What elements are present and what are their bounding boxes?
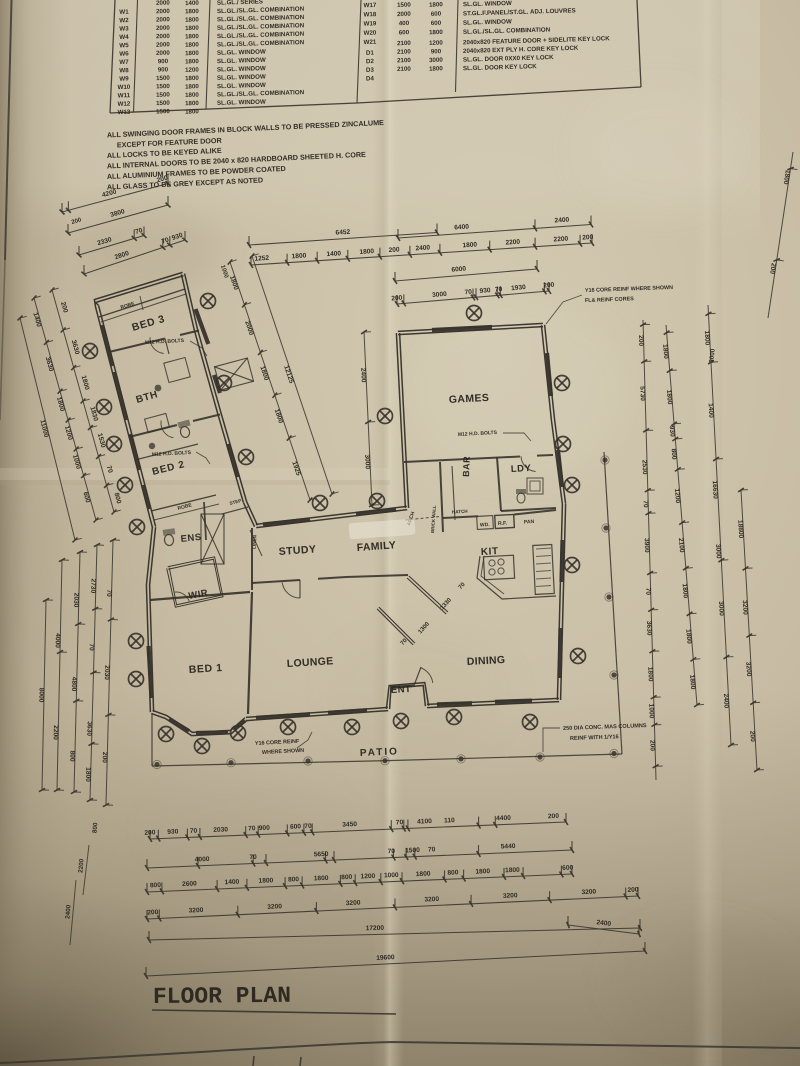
svg-text:W13: W13 xyxy=(117,109,130,116)
svg-text:W3: W3 xyxy=(119,25,129,32)
svg-text:2400: 2400 xyxy=(64,904,72,919)
svg-text:5650: 5650 xyxy=(314,851,329,859)
svg-text:70: 70 xyxy=(644,588,651,596)
svg-text:2200: 2200 xyxy=(505,239,520,247)
svg-text:3200: 3200 xyxy=(581,888,596,896)
svg-text:800: 800 xyxy=(341,874,353,881)
svg-text:1200: 1200 xyxy=(185,66,200,73)
svg-text:800: 800 xyxy=(447,869,459,876)
svg-text:4400: 4400 xyxy=(496,815,511,823)
svg-text:1800: 1800 xyxy=(314,875,329,883)
svg-text:1930: 1930 xyxy=(511,284,527,292)
svg-text:200: 200 xyxy=(748,731,756,743)
svg-text:SL.GL. WINDOW: SL.GL. WINDOW xyxy=(217,73,266,81)
svg-text:200: 200 xyxy=(147,909,159,917)
svg-text:3450: 3450 xyxy=(342,821,357,829)
svg-text:6400: 6400 xyxy=(454,223,469,231)
svg-text:3200: 3200 xyxy=(503,892,518,900)
svg-text:5440: 5440 xyxy=(501,843,516,851)
svg-text:2000: 2000 xyxy=(397,11,412,18)
svg-text:1800: 1800 xyxy=(429,1,444,8)
svg-text:1500: 1500 xyxy=(405,847,420,855)
svg-text:200: 200 xyxy=(101,752,108,764)
svg-text:1000: 1000 xyxy=(647,704,654,719)
svg-text:PATIO: PATIO xyxy=(360,746,400,759)
svg-text:4800: 4800 xyxy=(70,677,77,692)
svg-text:200: 200 xyxy=(548,813,560,820)
svg-text:GAMES: GAMES xyxy=(449,392,490,406)
svg-text:3200: 3200 xyxy=(346,899,361,907)
svg-text:4100: 4100 xyxy=(417,818,432,826)
svg-text:70: 70 xyxy=(388,848,396,855)
svg-text:1800: 1800 xyxy=(416,870,431,878)
svg-text:900: 900 xyxy=(158,58,169,65)
svg-text:1500: 1500 xyxy=(397,1,412,8)
svg-text:1800: 1800 xyxy=(688,674,696,690)
svg-text:1800: 1800 xyxy=(665,389,673,405)
svg-text:R.F.: R.F. xyxy=(498,520,508,527)
svg-text:1800: 1800 xyxy=(703,330,711,345)
svg-text:3630: 3630 xyxy=(85,721,92,736)
svg-text:1800: 1800 xyxy=(185,83,200,90)
svg-text:800: 800 xyxy=(288,876,300,883)
svg-text:200: 200 xyxy=(543,282,555,290)
svg-text:2600: 2600 xyxy=(182,880,197,888)
svg-text:1800: 1800 xyxy=(681,583,689,599)
svg-text:600: 600 xyxy=(399,29,410,36)
svg-text:1800: 1800 xyxy=(661,344,669,360)
svg-text:KIT: KIT xyxy=(481,546,499,558)
svg-text:900: 900 xyxy=(431,48,442,55)
svg-text:2530: 2530 xyxy=(640,460,647,475)
svg-text:4000: 4000 xyxy=(195,856,210,864)
svg-text:6000: 6000 xyxy=(451,265,467,273)
svg-text:1800: 1800 xyxy=(185,33,200,40)
svg-text:2000: 2000 xyxy=(156,16,171,23)
svg-text:SL.GL. WINDOW: SL.GL. WINDOW xyxy=(463,0,512,8)
svg-text:2400: 2400 xyxy=(415,244,430,252)
svg-text:930: 930 xyxy=(668,426,676,438)
svg-text:600: 600 xyxy=(431,20,442,27)
svg-text:70: 70 xyxy=(248,825,256,832)
svg-text:18800: 18800 xyxy=(736,520,744,539)
svg-text:2100: 2100 xyxy=(397,66,412,73)
svg-text:1800: 1800 xyxy=(185,75,200,82)
svg-text:1800: 1800 xyxy=(646,667,653,682)
svg-text:600: 600 xyxy=(562,864,574,871)
svg-text:1200: 1200 xyxy=(673,488,681,504)
svg-text:70: 70 xyxy=(428,846,436,853)
svg-text:70: 70 xyxy=(642,500,649,508)
svg-text:3000: 3000 xyxy=(717,601,725,616)
svg-text:WD.: WD. xyxy=(480,522,491,529)
svg-text:W12: W12 xyxy=(117,101,130,108)
svg-text:1800: 1800 xyxy=(185,100,200,107)
svg-text:SL.GL. WINDOW: SL.GL. WINDOW xyxy=(217,48,266,56)
svg-text:2730: 2730 xyxy=(89,578,96,593)
svg-text:1800: 1800 xyxy=(185,41,200,48)
svg-text:SL.GL. WINDOW: SL.GL. WINDOW xyxy=(217,99,266,107)
svg-text:2030: 2030 xyxy=(72,593,79,608)
svg-text:W19: W19 xyxy=(363,20,376,27)
svg-text:600: 600 xyxy=(290,823,302,830)
svg-text:W9: W9 xyxy=(119,75,129,82)
svg-text:3200: 3200 xyxy=(744,662,752,677)
svg-text:2400: 2400 xyxy=(554,216,569,224)
svg-text:5730: 5730 xyxy=(638,386,645,401)
svg-text:1800: 1800 xyxy=(291,252,306,260)
svg-text:1800: 1800 xyxy=(84,767,91,782)
svg-text:D1: D1 xyxy=(366,49,375,56)
svg-text:110: 110 xyxy=(444,817,455,824)
svg-text:1400: 1400 xyxy=(707,403,715,418)
svg-text:2100: 2100 xyxy=(397,40,412,47)
svg-text:900: 900 xyxy=(259,825,271,832)
svg-text:1400: 1400 xyxy=(185,0,200,7)
svg-text:PAN: PAN xyxy=(524,519,535,526)
svg-text:D3: D3 xyxy=(366,67,375,74)
svg-text:DINING: DINING xyxy=(467,654,506,668)
svg-text:W2: W2 xyxy=(119,17,129,24)
svg-text:800: 800 xyxy=(670,448,678,460)
svg-text:1800: 1800 xyxy=(475,868,490,876)
svg-text:W21: W21 xyxy=(363,39,376,46)
svg-text:W8: W8 xyxy=(119,67,129,74)
svg-text:70: 70 xyxy=(88,643,95,651)
svg-text:1800: 1800 xyxy=(185,108,200,115)
svg-text:70: 70 xyxy=(464,289,472,297)
svg-text:800: 800 xyxy=(92,822,100,834)
svg-text:600: 600 xyxy=(431,11,442,18)
svg-text:2000: 2000 xyxy=(156,25,171,32)
svg-text:W4: W4 xyxy=(119,34,129,41)
svg-text:1800: 1800 xyxy=(185,50,200,57)
svg-text:2000: 2000 xyxy=(156,41,171,48)
svg-text:8000: 8000 xyxy=(37,688,44,703)
svg-text:800: 800 xyxy=(68,750,75,762)
svg-text:1800: 1800 xyxy=(462,241,477,249)
svg-text:3200: 3200 xyxy=(424,896,439,904)
svg-text:SL.GL. WINDOW: SL.GL. WINDOW xyxy=(463,18,512,26)
svg-text:2100: 2100 xyxy=(397,48,412,55)
svg-text:2030: 2030 xyxy=(213,826,228,834)
svg-text:930: 930 xyxy=(479,287,491,295)
svg-text:200: 200 xyxy=(627,886,639,894)
svg-text:70: 70 xyxy=(190,828,198,835)
svg-text:1800: 1800 xyxy=(684,629,692,645)
svg-text:6452: 6452 xyxy=(335,229,350,237)
svg-text:1800: 1800 xyxy=(185,8,200,15)
svg-text:W7: W7 xyxy=(119,59,129,66)
svg-text:SL.GL. WINDOW: SL.GL. WINDOW xyxy=(217,82,266,90)
svg-text:200: 200 xyxy=(388,246,400,254)
svg-text:ENS: ENS xyxy=(180,532,202,545)
svg-text:900: 900 xyxy=(158,66,169,73)
svg-text:1800: 1800 xyxy=(185,92,200,99)
svg-text:1000: 1000 xyxy=(384,872,399,880)
svg-text:70: 70 xyxy=(304,823,312,830)
svg-text:W17: W17 xyxy=(363,2,376,9)
svg-text:70: 70 xyxy=(495,286,503,294)
svg-text:2000: 2000 xyxy=(156,0,171,7)
svg-text:2400: 2400 xyxy=(722,693,730,708)
svg-text:2400: 2400 xyxy=(359,368,367,383)
svg-text:2100: 2100 xyxy=(677,538,685,554)
svg-text:1800: 1800 xyxy=(429,29,444,36)
svg-text:1252: 1252 xyxy=(254,255,269,263)
svg-text:1200: 1200 xyxy=(360,873,375,881)
svg-text:1800: 1800 xyxy=(258,877,273,885)
svg-text:200: 200 xyxy=(637,335,644,347)
svg-text:D2: D2 xyxy=(366,58,375,65)
svg-text:2200: 2200 xyxy=(77,858,85,873)
svg-text:W11: W11 xyxy=(118,92,131,99)
svg-text:LDY: LDY xyxy=(511,463,532,475)
svg-text:3630: 3630 xyxy=(645,621,652,636)
svg-text:1400: 1400 xyxy=(224,879,239,887)
svg-text:800: 800 xyxy=(150,882,162,889)
svg-text:70: 70 xyxy=(396,819,404,826)
svg-text:70: 70 xyxy=(249,854,257,861)
svg-text:W1: W1 xyxy=(119,9,129,16)
svg-text:200: 200 xyxy=(582,234,594,242)
svg-text:17200: 17200 xyxy=(366,925,385,932)
svg-text:FLOOR PLAN: FLOOR PLAN xyxy=(153,983,291,1010)
svg-text:1500: 1500 xyxy=(156,108,171,115)
svg-text:D4: D4 xyxy=(366,75,375,82)
svg-text:70: 70 xyxy=(105,589,112,597)
svg-text:200: 200 xyxy=(144,829,156,836)
svg-text:W20: W20 xyxy=(363,30,376,37)
svg-text:4000: 4000 xyxy=(54,633,61,648)
svg-text:1800: 1800 xyxy=(185,16,200,23)
svg-text:ENT: ENT xyxy=(391,684,412,696)
svg-text:BAR: BAR xyxy=(461,456,472,477)
svg-text:W6: W6 xyxy=(119,50,129,57)
svg-text:LINEN: LINEN xyxy=(252,534,258,549)
svg-text:3200: 3200 xyxy=(741,600,749,615)
svg-text:1800: 1800 xyxy=(185,25,200,32)
svg-text:1500: 1500 xyxy=(156,91,171,98)
svg-text:SL.GL. WINDOW: SL.GL. WINDOW xyxy=(217,57,266,65)
svg-text:1500: 1500 xyxy=(156,75,171,82)
svg-text:400: 400 xyxy=(399,20,410,27)
svg-text:W18: W18 xyxy=(363,11,376,18)
svg-text:2200: 2200 xyxy=(52,725,59,740)
svg-text:2200: 2200 xyxy=(553,236,568,244)
svg-text:BED 1: BED 1 xyxy=(188,662,223,676)
svg-text:1800: 1800 xyxy=(185,58,200,65)
svg-text:3200: 3200 xyxy=(189,907,204,915)
svg-text:1500: 1500 xyxy=(156,83,171,90)
svg-text:SL.GL. WINDOW: SL.GL. WINDOW xyxy=(217,65,266,73)
svg-text:1200: 1200 xyxy=(429,39,444,46)
svg-text:3900: 3900 xyxy=(643,538,650,553)
svg-text:W5: W5 xyxy=(119,42,129,49)
svg-text:1800: 1800 xyxy=(359,248,374,256)
svg-text:200: 200 xyxy=(648,740,655,752)
svg-text:3200: 3200 xyxy=(267,903,282,911)
svg-text:1400: 1400 xyxy=(326,250,341,258)
svg-text:3000: 3000 xyxy=(429,57,444,64)
svg-text:2030: 2030 xyxy=(103,665,110,680)
svg-text:200: 200 xyxy=(391,295,403,303)
svg-text:2000: 2000 xyxy=(156,8,171,15)
svg-text:930: 930 xyxy=(167,828,179,835)
svg-text:2100: 2100 xyxy=(397,57,412,64)
svg-text:1500: 1500 xyxy=(156,100,171,107)
svg-text:3000: 3000 xyxy=(714,544,722,559)
svg-text:2000: 2000 xyxy=(156,33,171,40)
svg-text:1800: 1800 xyxy=(429,65,444,72)
svg-text:1800: 1800 xyxy=(505,867,520,875)
svg-text:16630: 16630 xyxy=(711,480,719,499)
svg-text:19600: 19600 xyxy=(376,954,395,962)
svg-text:3000: 3000 xyxy=(363,454,371,469)
svg-text:2000: 2000 xyxy=(156,50,171,57)
svg-text:HATCH: HATCH xyxy=(452,509,469,515)
svg-text:W10: W10 xyxy=(117,84,130,91)
svg-text:3000: 3000 xyxy=(432,291,448,299)
